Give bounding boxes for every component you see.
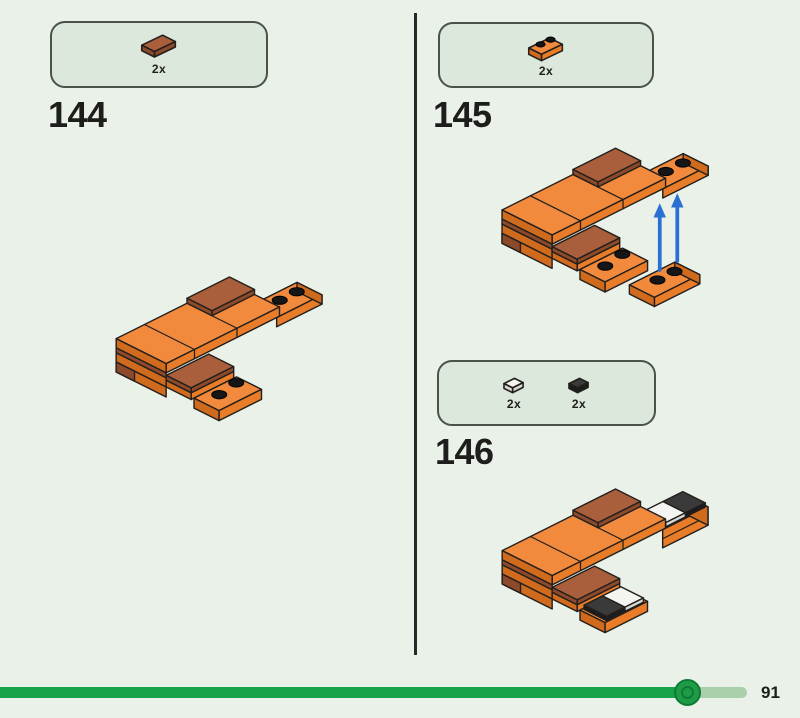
part-item: 2x xyxy=(502,375,527,411)
placement-up-arrow-icon xyxy=(653,203,666,270)
step-145-assembly-illustration xyxy=(482,143,714,312)
step-145-number: 145 xyxy=(433,97,492,133)
progress-bar-fill xyxy=(0,687,688,698)
part-count: 2x xyxy=(572,397,586,411)
step-144-number: 144 xyxy=(48,97,107,133)
part-item: 2x xyxy=(526,33,566,78)
body-plate xyxy=(116,277,279,373)
page-number: 91 xyxy=(761,683,780,703)
step-144-parts-panel: 2x xyxy=(50,21,268,88)
part-count: 2x xyxy=(539,64,553,78)
progress-slider-knob[interactable] xyxy=(674,679,701,706)
part-item: 2x xyxy=(139,33,179,76)
brown-1x2-tile-icon xyxy=(139,33,179,61)
black-1x1-tile-icon xyxy=(567,375,592,396)
part-item: 2x xyxy=(567,375,592,411)
part-count: 2x xyxy=(507,397,521,411)
progress-bar-track[interactable] xyxy=(0,687,747,698)
orange-1x2-plate-icon xyxy=(526,33,566,63)
step-146-parts-panel: 2x 2x xyxy=(437,360,656,426)
body-plate xyxy=(502,148,666,244)
instruction-page: 2x 144 xyxy=(0,0,800,718)
step-145-parts-panel: 2x xyxy=(438,22,654,88)
progress-knob-ring xyxy=(681,686,694,699)
step-146-assembly-illustration xyxy=(482,484,714,639)
column-divider xyxy=(414,13,417,655)
placement-up-arrow-icon xyxy=(671,193,684,261)
white-1x1-tile-icon xyxy=(502,375,527,396)
step-146-number: 146 xyxy=(435,434,494,470)
part-count: 2x xyxy=(152,62,166,76)
body-plate xyxy=(502,489,665,585)
step-144-assembly-illustration xyxy=(96,272,328,427)
